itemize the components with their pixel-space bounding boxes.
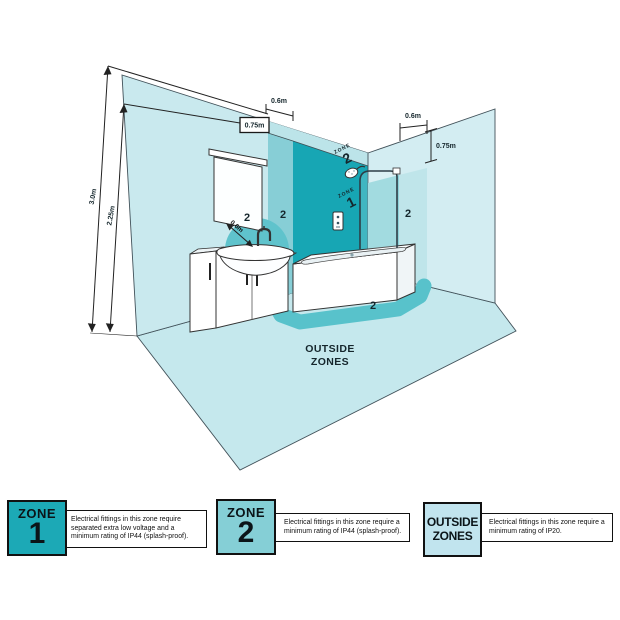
basin-rim xyxy=(217,245,294,261)
zone2-badge-title: ZONE xyxy=(227,506,265,519)
outside-badge-number: ZONES xyxy=(433,530,473,544)
marker-left-wall-zone: 2 xyxy=(280,209,286,221)
right-band-width-label: 0.6m xyxy=(405,113,421,120)
glass-hinge xyxy=(393,168,400,174)
zone2-description: Electrical fittings in this zone require… xyxy=(274,513,410,542)
bathroom-zones-infographic: ZONE 2 ZONE 1 2 2 2 2 0.75m 0.6m 0.6m 0.… xyxy=(0,0,620,620)
vanity-left-door xyxy=(190,251,216,332)
zone1-badge: ZONE 1 xyxy=(7,500,67,556)
left-band-width-label: 0.6m xyxy=(271,98,287,105)
zones-diagram: ZONE 2 ZONE 1 2 2 2 2 0.75m 0.6m 0.6m 0.… xyxy=(0,0,620,498)
right-drop-label: 0.75m xyxy=(436,143,456,150)
marker-basin-zone: 2 xyxy=(244,212,250,224)
outside-zones-label-line1: OUTSIDE xyxy=(305,343,354,355)
shower-control-unit xyxy=(333,212,343,230)
zone2-badge: ZONE 2 xyxy=(216,499,276,555)
outside-zones-label-line2: ZONES xyxy=(311,356,349,368)
mirror xyxy=(214,157,262,231)
zone1-badge-title: ZONE xyxy=(18,507,56,520)
zone2-badge-number: 2 xyxy=(238,519,255,548)
marker-right-wall-zone: 2 xyxy=(405,208,411,220)
wall-height-label: 3.0m xyxy=(89,188,99,205)
left-drop-label: 0.75m xyxy=(245,123,265,130)
zone-height-label: 2.25m xyxy=(106,205,116,226)
outside-badge-title: OUTSIDE xyxy=(427,516,478,530)
zone1-description: Electrical fittings in this zone require… xyxy=(61,510,207,548)
zone1-badge-number: 1 xyxy=(29,520,46,549)
bath-plug xyxy=(350,253,353,256)
marker-floor-zone: 2 xyxy=(370,300,376,312)
bath-end-panel xyxy=(397,244,415,300)
shower-glass-screen xyxy=(360,171,397,249)
outside-zones-description: Electrical fittings in this zone require… xyxy=(479,513,613,542)
outside-zones-badge: OUTSIDE ZONES xyxy=(423,502,482,557)
